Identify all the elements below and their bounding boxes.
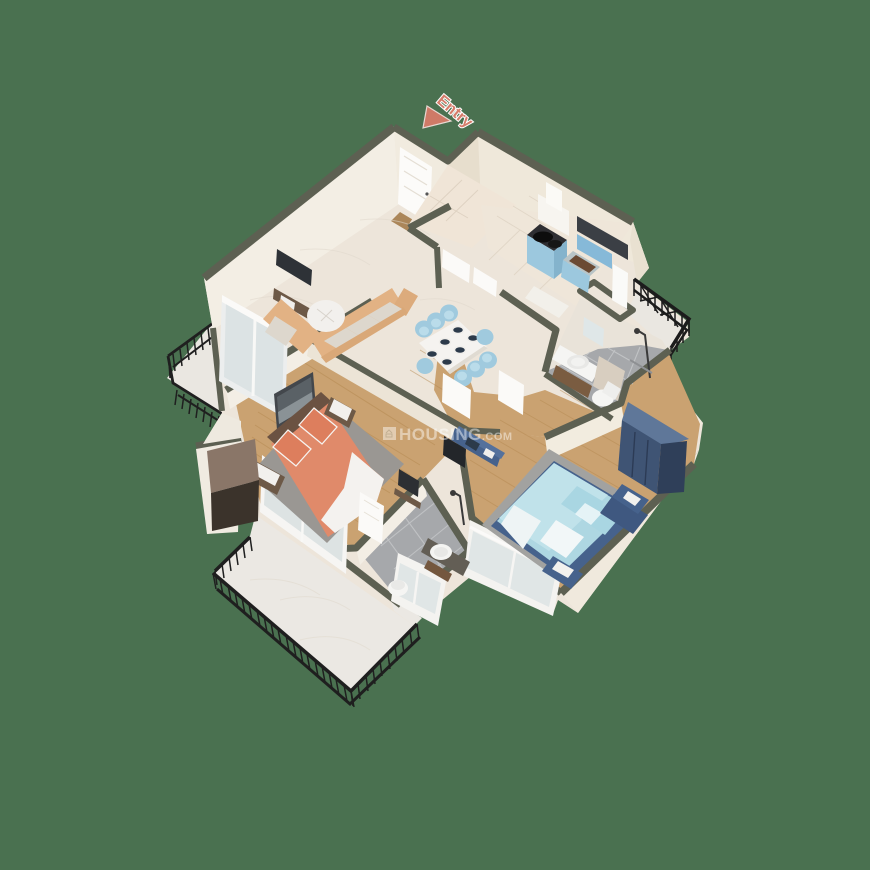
- svg-text:Entry: Entry: [433, 92, 475, 131]
